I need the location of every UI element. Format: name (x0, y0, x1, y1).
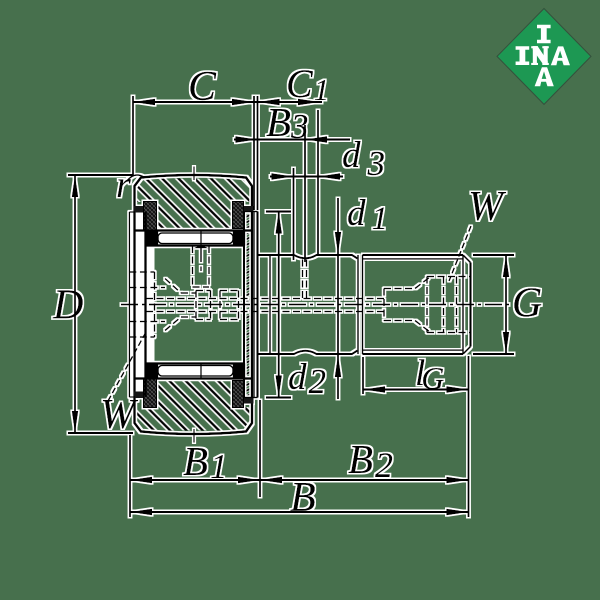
svg-text:d1: d1 (347, 193, 388, 237)
svg-text:B1: B1 (183, 438, 228, 486)
svg-text:W: W (468, 184, 507, 230)
svg-text:D: D (52, 283, 83, 329)
svg-text:r: r (116, 164, 131, 206)
svg-text:W: W (100, 392, 139, 438)
svg-text:d2: d2 (288, 357, 326, 401)
svg-text:C1: C1 (286, 61, 329, 107)
svg-text:B: B (290, 475, 316, 521)
svg-text:B3: B3 (266, 99, 309, 146)
svg-text:lG: lG (415, 353, 444, 396)
svg-text:C: C (188, 64, 217, 110)
svg-text:B2: B2 (348, 436, 393, 485)
svg-text:d3: d3 (342, 135, 385, 183)
svg-text:G: G (512, 281, 542, 327)
